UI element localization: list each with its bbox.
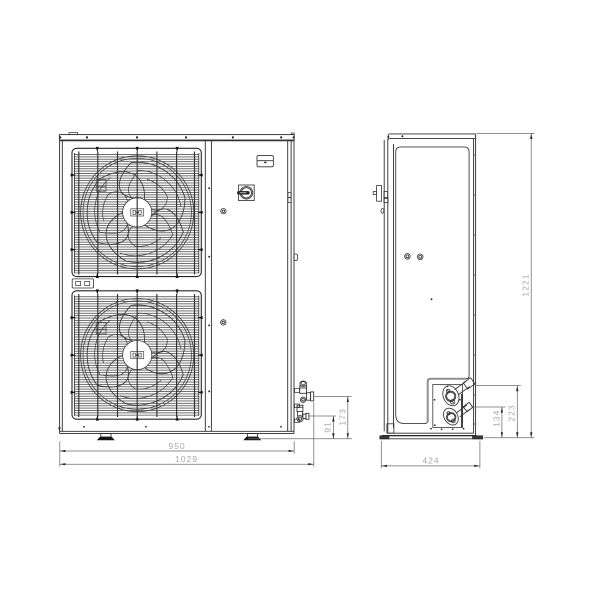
svg-text:173: 173 <box>337 408 347 425</box>
svg-text:1029: 1029 <box>175 454 198 464</box>
svg-text:91: 91 <box>323 421 333 433</box>
svg-text:1221: 1221 <box>521 273 531 296</box>
svg-text:134: 134 <box>491 410 501 427</box>
svg-text:950: 950 <box>168 441 185 451</box>
svg-text:223: 223 <box>507 404 517 421</box>
svg-text:424: 424 <box>422 455 439 465</box>
